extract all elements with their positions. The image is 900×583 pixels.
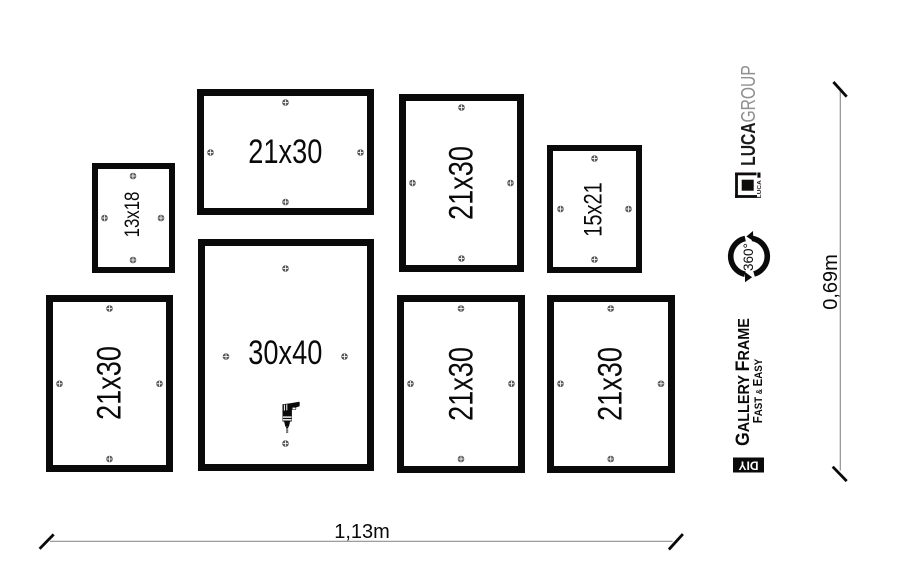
svg-text:LUCA: LUCA	[757, 180, 763, 198]
